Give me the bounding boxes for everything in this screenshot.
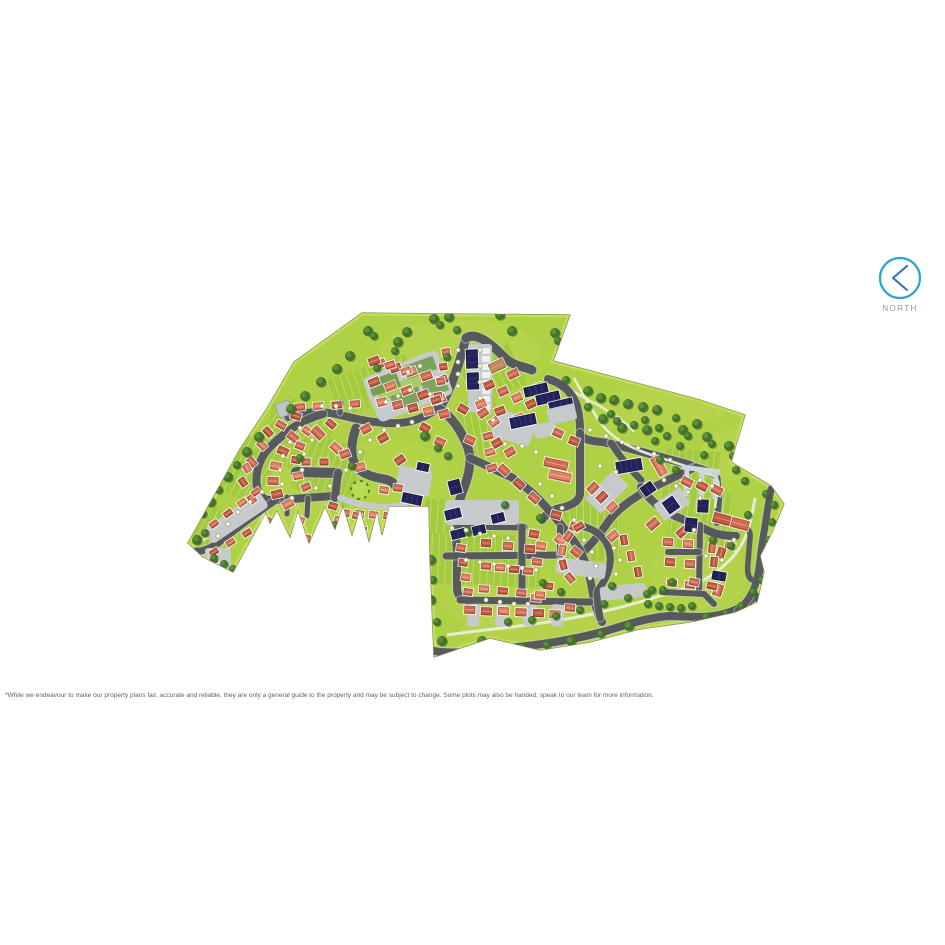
svg-text:*While we endeavour to make ou: *While we endeavour to make our property… [5, 692, 654, 699]
svg-text:NORTH: NORTH [882, 304, 917, 313]
